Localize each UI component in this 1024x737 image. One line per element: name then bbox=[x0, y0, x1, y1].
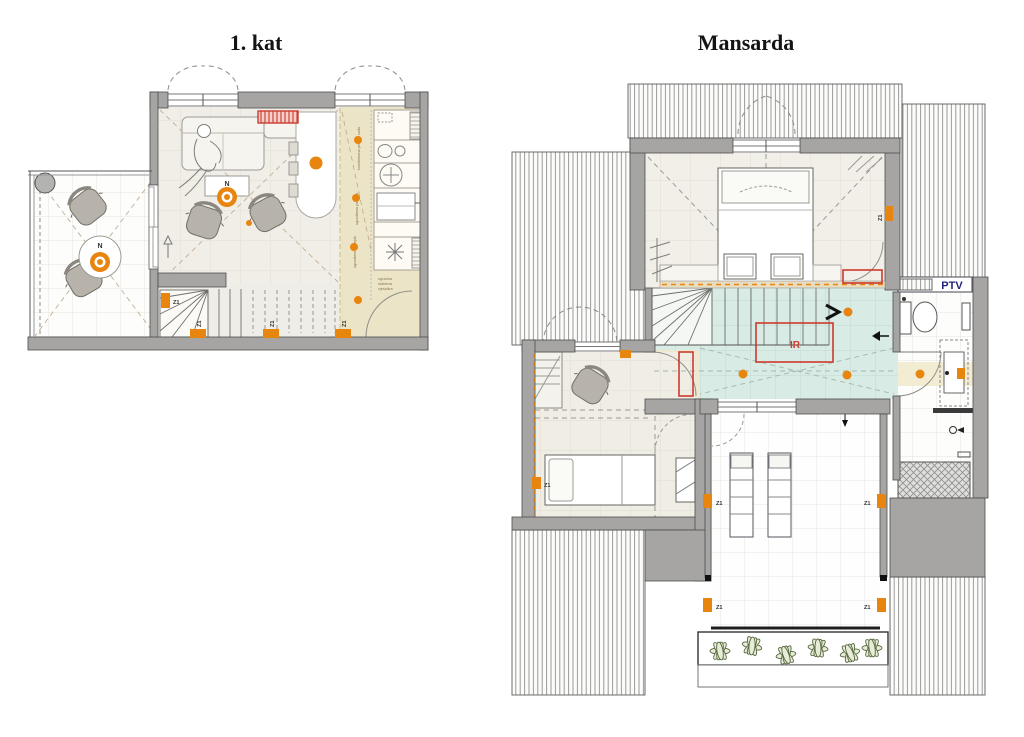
roof-left-lower bbox=[512, 530, 645, 695]
kitchen-corner-note: staklena bbox=[378, 282, 393, 286]
z1-label: Z1 bbox=[270, 320, 276, 327]
floorplan-drawing: 1. kat Mansarda N bbox=[0, 0, 1024, 737]
bed-bench bbox=[771, 254, 803, 279]
wall-end-cap bbox=[880, 575, 887, 581]
north-point-terrace bbox=[90, 252, 110, 272]
terrace-north-label: N bbox=[97, 243, 102, 250]
kitchen-note-3: ugradbeni hladnjak bbox=[353, 236, 357, 268]
z1-label: Z1 bbox=[716, 605, 723, 611]
bed-pillows bbox=[722, 171, 809, 203]
roof-right-upper bbox=[902, 104, 985, 283]
shelf-hatch bbox=[410, 112, 421, 139]
partition-wall bbox=[933, 408, 975, 413]
shaft-box bbox=[676, 458, 695, 502]
attic-title: Mansarda bbox=[698, 30, 795, 55]
window-swing-arcs bbox=[168, 66, 405, 90]
z1-label: Z1 bbox=[878, 214, 884, 221]
bar-stool bbox=[289, 142, 298, 155]
kitchen-note-1: kombinirana perilica suđa bbox=[357, 126, 361, 170]
z1-label: Z1 bbox=[197, 320, 203, 327]
floorplan-page: 1. kat Mansarda N bbox=[0, 0, 1024, 737]
first-floor-red-elements bbox=[258, 111, 298, 123]
bed-pillow bbox=[549, 459, 573, 501]
z1-label: Z1 bbox=[544, 483, 551, 489]
roof-left-upper bbox=[512, 152, 648, 345]
z1-label: Z1 bbox=[864, 501, 871, 507]
wall-end-cap bbox=[705, 575, 711, 581]
first-floor-title: 1. kat bbox=[230, 30, 283, 55]
planter-wall bbox=[698, 665, 888, 687]
z1-label: Z1 bbox=[173, 300, 180, 306]
z1-label: Z1 bbox=[342, 320, 348, 327]
fridge-star-icon bbox=[386, 243, 404, 261]
kitchen-corner-note: vješalica bbox=[378, 287, 393, 291]
toilet-tank bbox=[900, 302, 911, 334]
ptv-label: PTV bbox=[941, 280, 963, 292]
plan-first-floor: N N bbox=[28, 66, 428, 350]
column bbox=[35, 173, 55, 193]
bar-stool bbox=[289, 162, 298, 175]
toilet-bowl bbox=[913, 302, 937, 332]
bed-bench bbox=[724, 254, 756, 279]
north-point-table bbox=[217, 187, 237, 207]
roof-top bbox=[628, 84, 902, 138]
kitchen-corner-note: ugradna bbox=[378, 277, 393, 281]
ir-label: IR bbox=[790, 340, 801, 351]
z1-label: Z1 bbox=[716, 501, 723, 507]
plan-attic: PTV bbox=[512, 84, 988, 695]
radiator bbox=[258, 111, 298, 123]
bar-stool bbox=[289, 184, 298, 197]
wall-panel bbox=[962, 303, 970, 330]
z1-label: Z1 bbox=[864, 605, 871, 611]
coffee-table-north-label: N bbox=[224, 181, 229, 188]
low-cabinet bbox=[813, 265, 841, 282]
roof-right-lower bbox=[890, 577, 985, 695]
shower-floor-hatch bbox=[898, 462, 970, 498]
